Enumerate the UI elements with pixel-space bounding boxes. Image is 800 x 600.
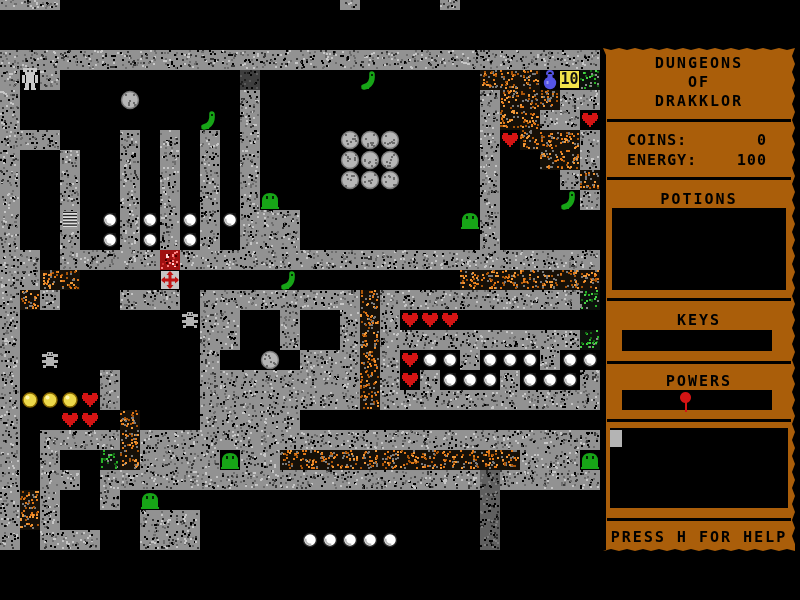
coins-value: 0 [757,131,767,149]
keys-label: KEYS [603,311,795,329]
potions-inventory-box [612,208,786,290]
game-title-line3: DRAKKLOR [603,92,795,111]
coins-stat: COINS: 0 [627,131,767,149]
divider [607,361,791,364]
keys-inventory-box [622,330,772,351]
game-screen: DUNGEONS OF DRAKKLOR COINS: 0 ENERGY: 10… [0,0,800,600]
divider [607,419,791,422]
powers-label: POWERS [603,372,795,390]
help-text: PRESS H FOR HELP [603,528,795,546]
potions-label: POTIONS [603,190,795,208]
game-title: DUNGEONS OF DRAKKLOR [603,54,795,111]
main-inventory-box [610,428,788,508]
inventory-cursor [610,430,622,447]
divider [607,177,791,180]
game-title-line1: DUNGEONS [603,54,795,73]
divider [607,518,791,521]
energy-label: ENERGY: [627,151,697,169]
hud-panel: DUNGEONS OF DRAKKLOR COINS: 0 ENERGY: 10… [603,48,795,551]
energy-value: 100 [737,151,767,169]
powers-inventory-box [622,390,772,410]
dungeon-map[interactable] [0,0,600,600]
balloon-power-stem [685,402,687,412]
divider [607,119,791,122]
energy-stat: ENERGY: 100 [627,151,767,169]
coins-label: COINS: [627,131,687,149]
game-title-line2: OF [603,73,795,92]
divider [607,298,791,301]
